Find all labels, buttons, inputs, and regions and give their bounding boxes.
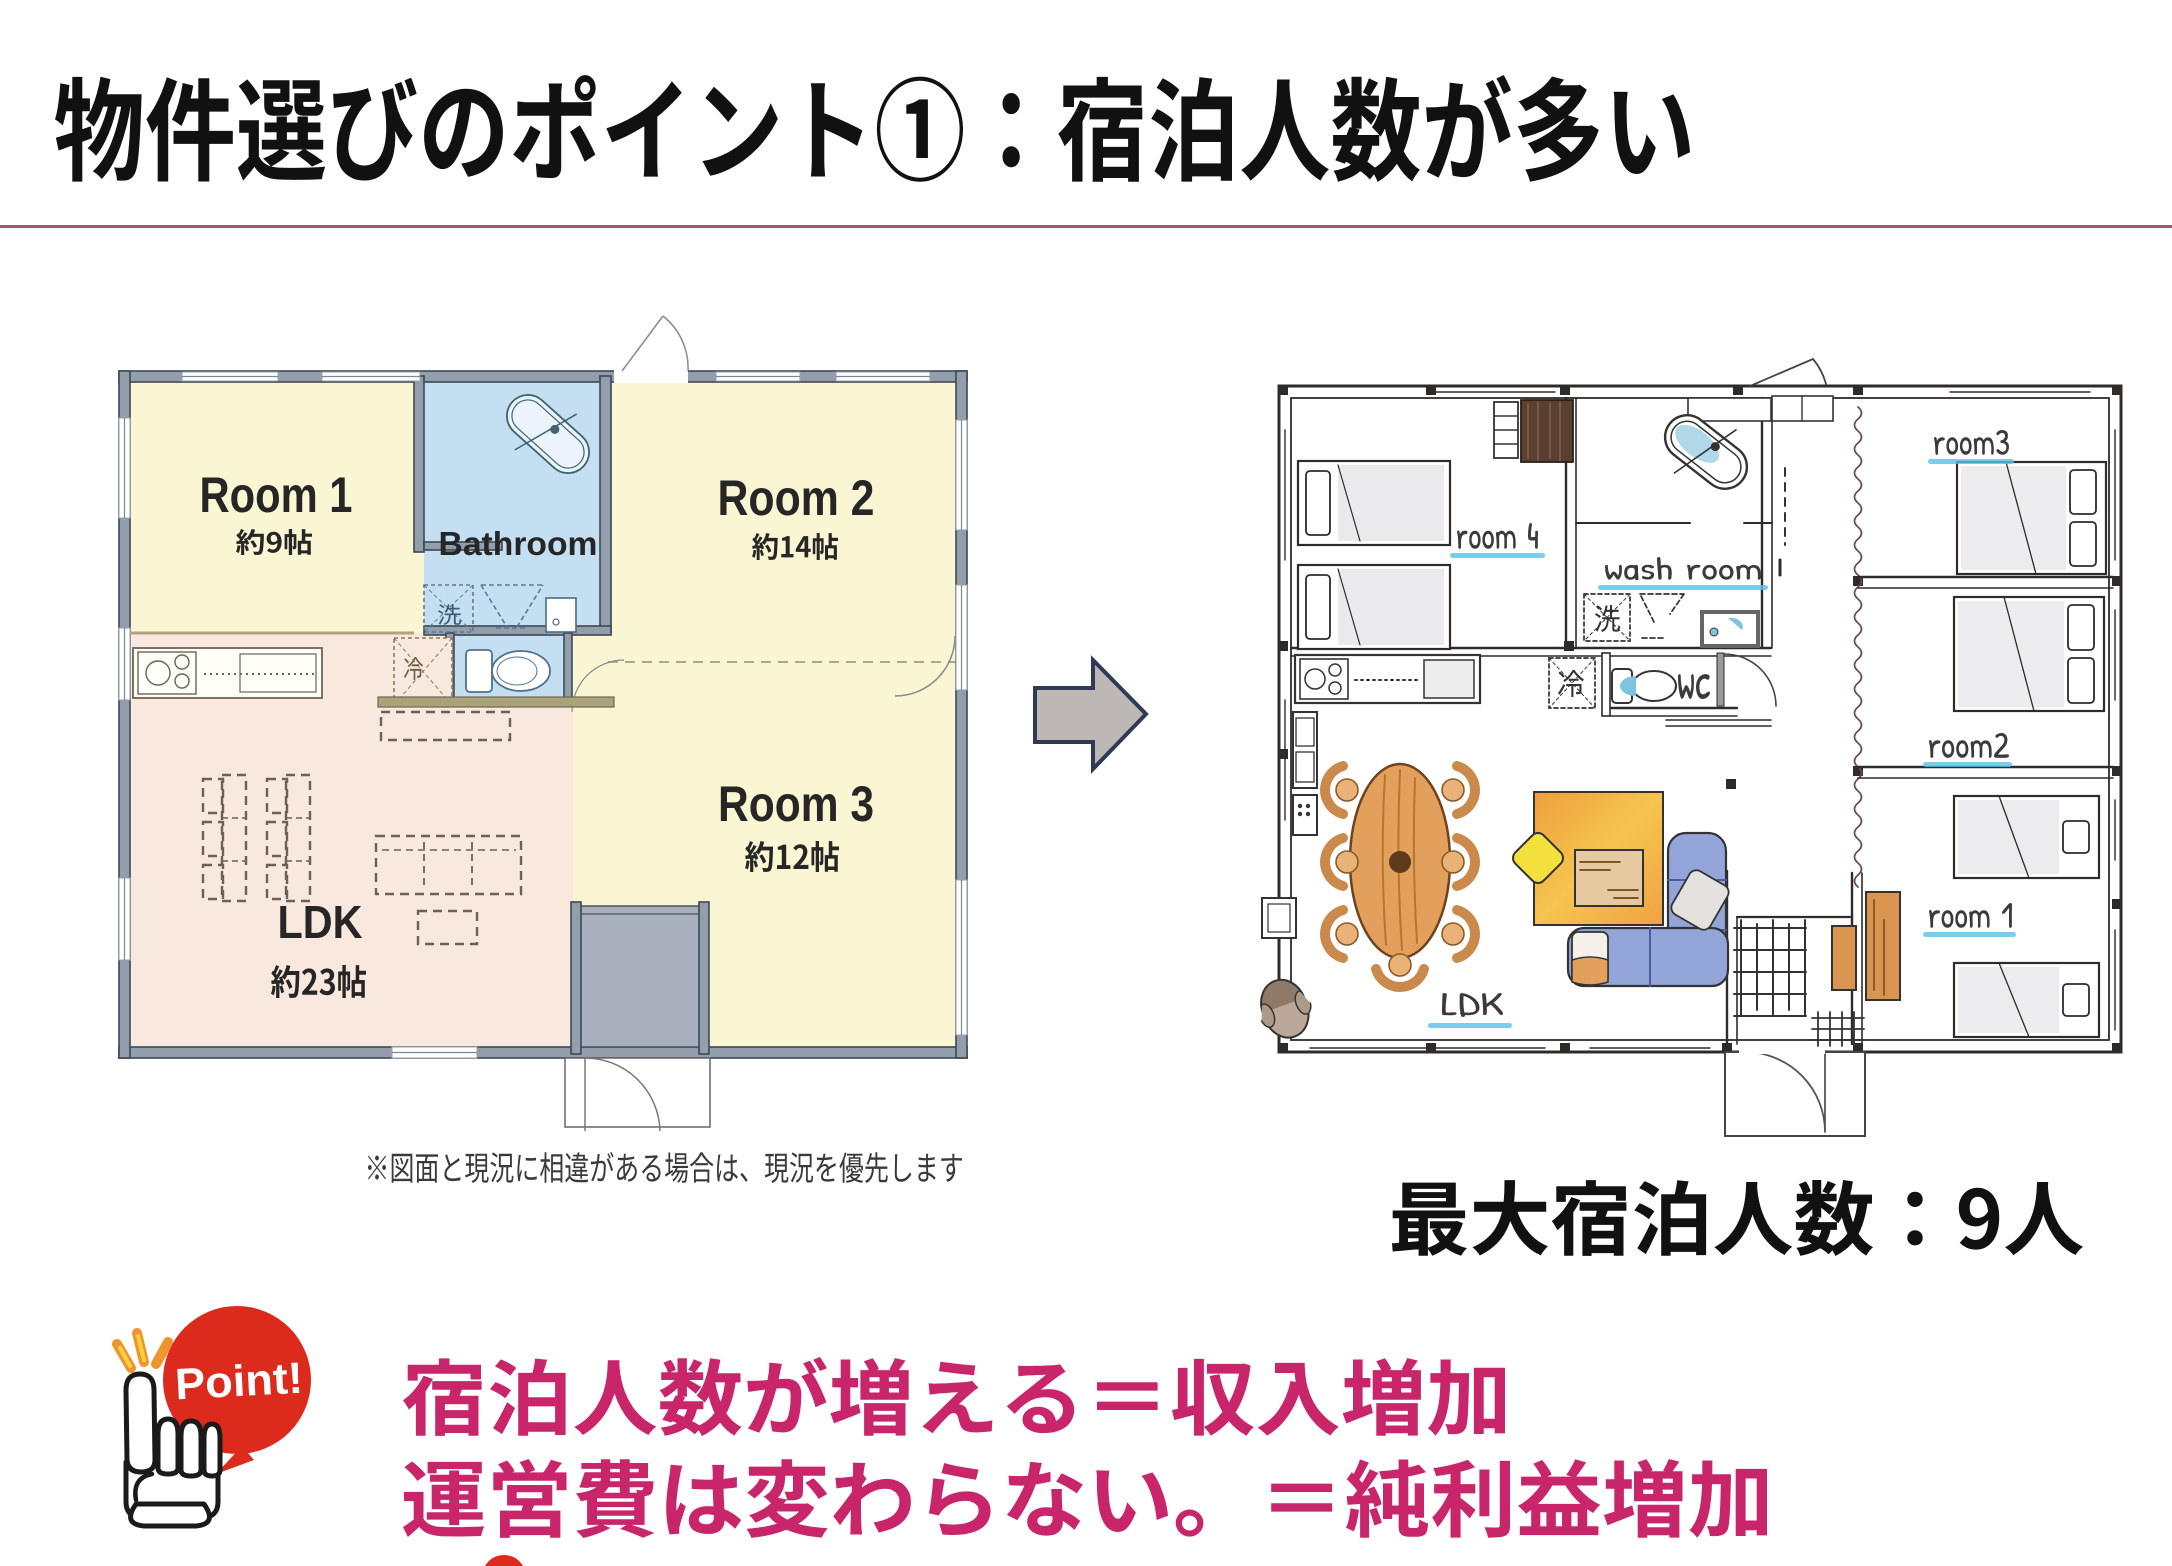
svg-text:Room 1: Room 1 [200,467,353,523]
svg-text:Bathroom: Bathroom [439,525,598,562]
svg-text:LDK: LDK [278,896,363,948]
svg-text:Point!: Point! [174,1354,304,1410]
svg-text:Room 3: Room 3 [718,776,874,832]
svg-text:Room 2: Room 2 [718,470,875,526]
